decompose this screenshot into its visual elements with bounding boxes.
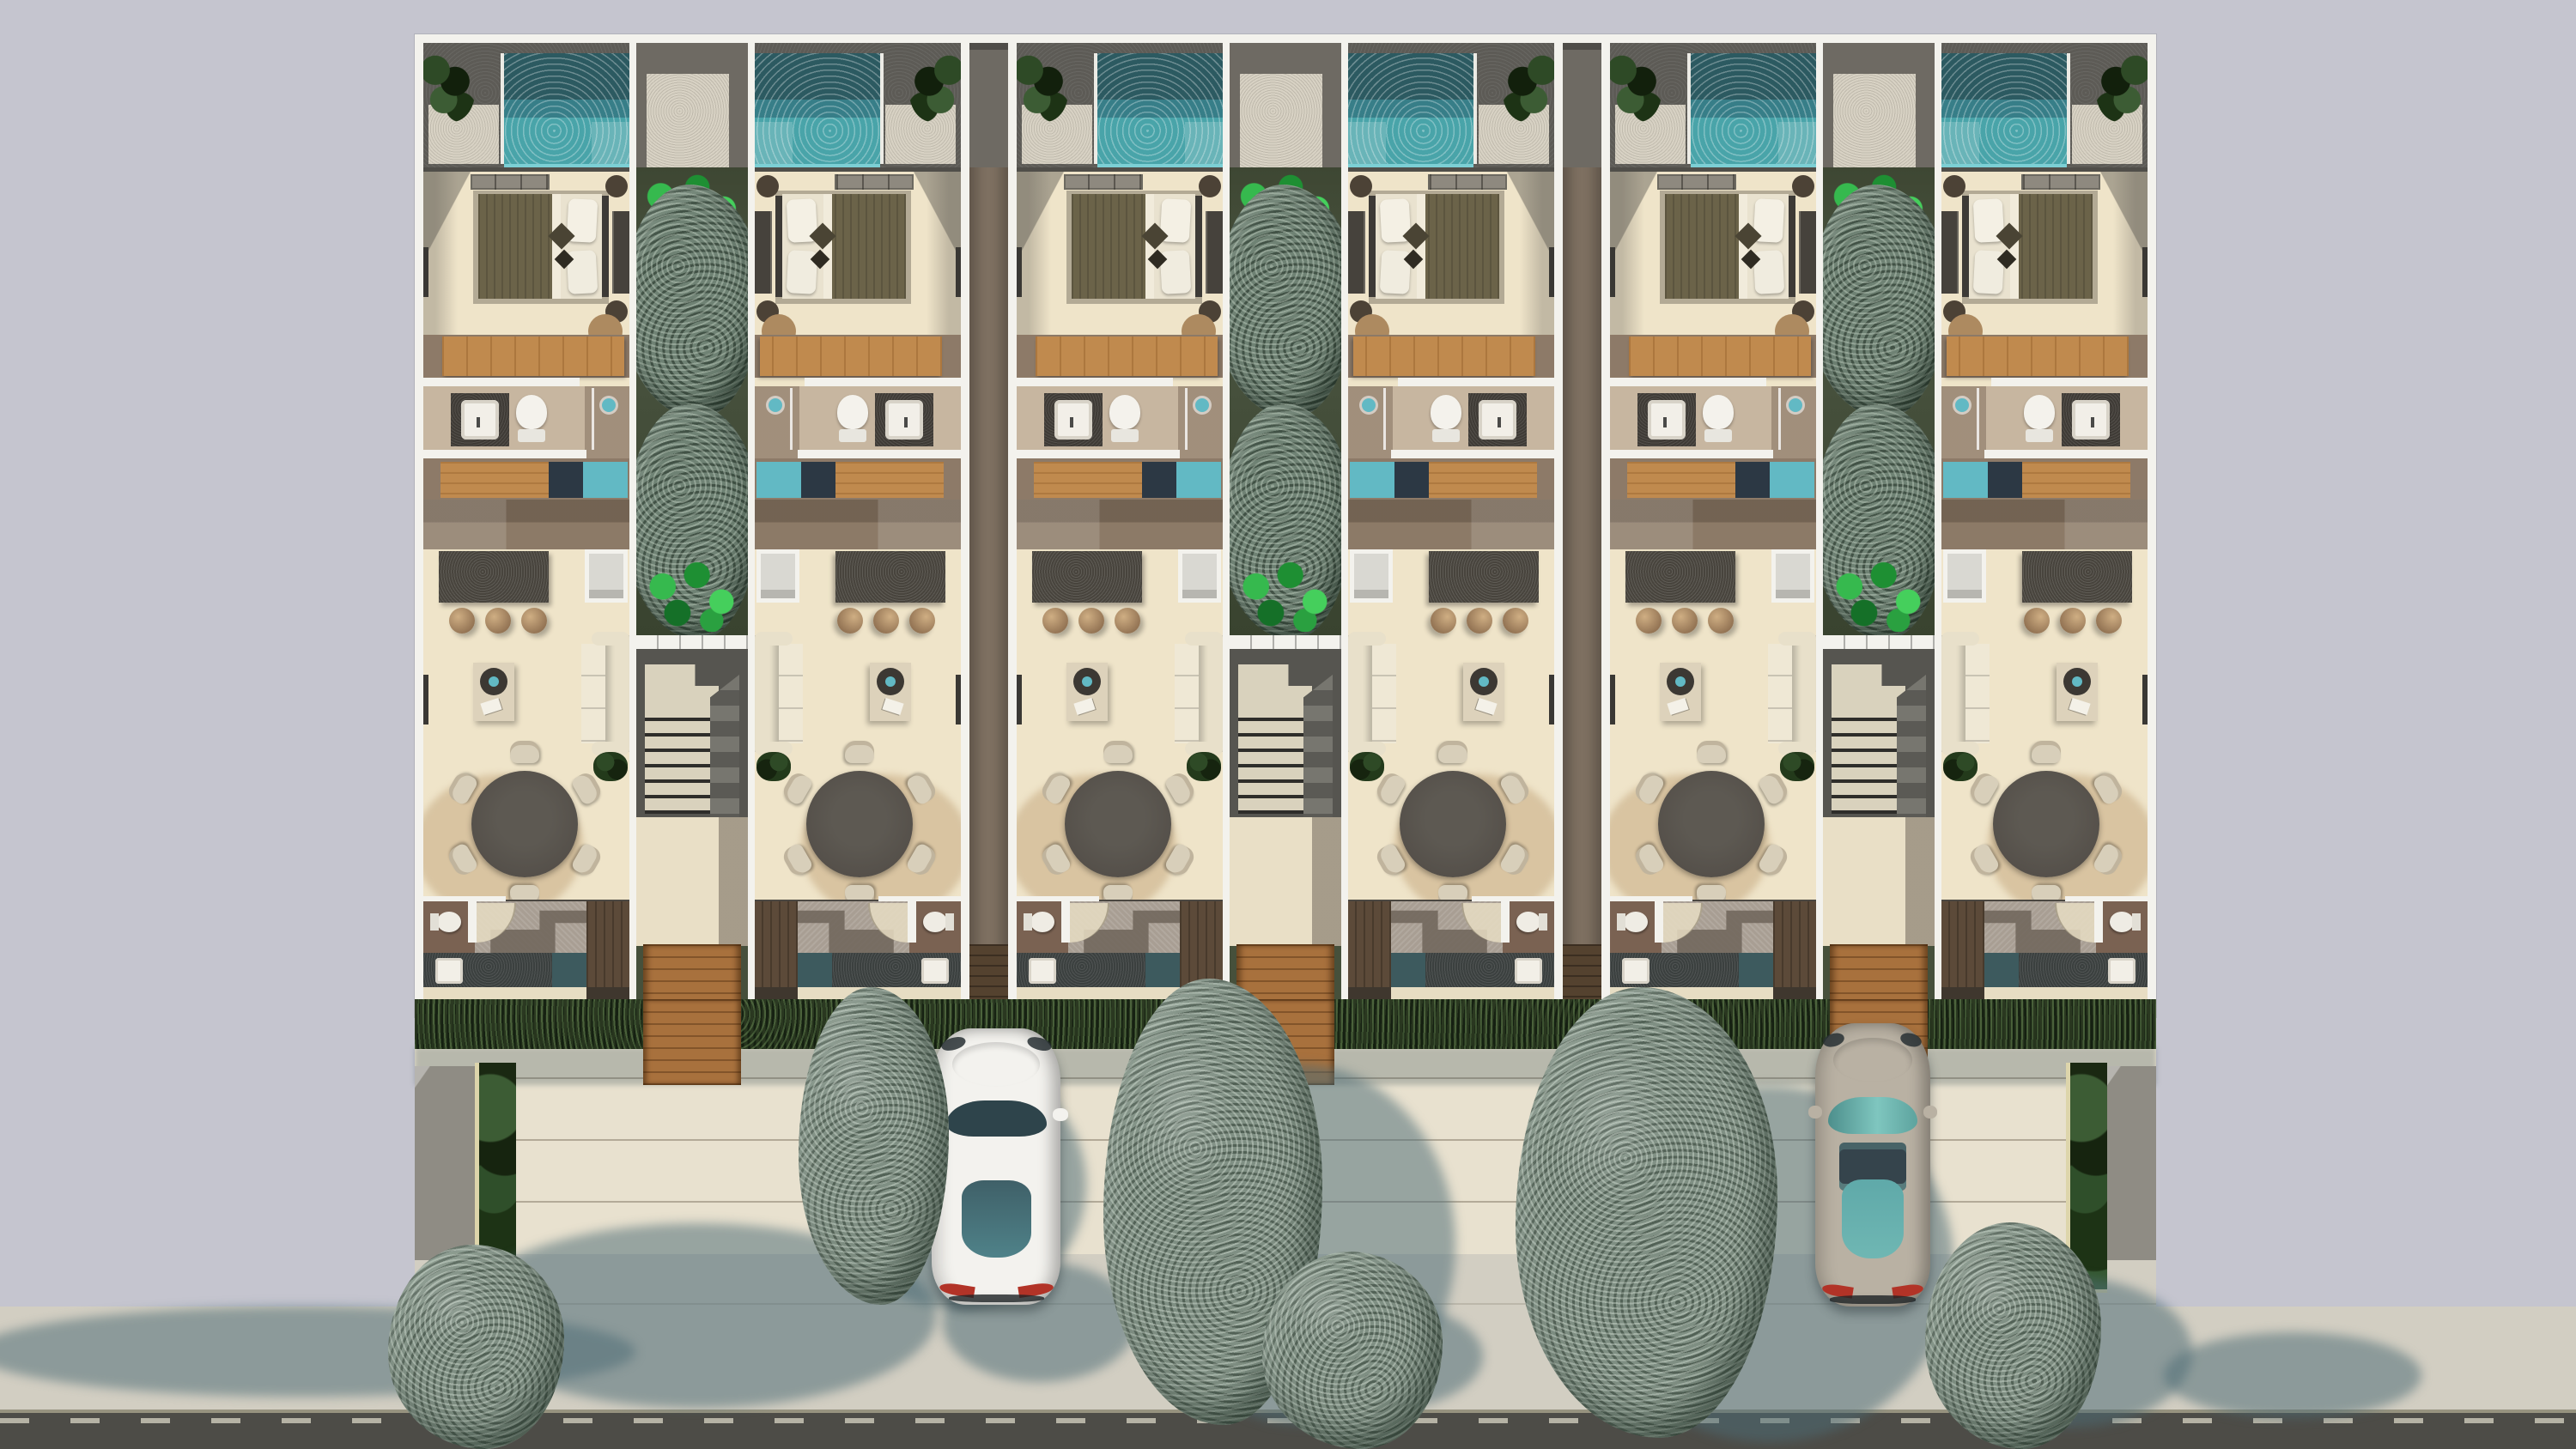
kitchen-appliance [1771, 549, 1814, 603]
faucet [2091, 417, 2094, 427]
car-white [932, 1028, 1060, 1305]
kitchen-appliance [1350, 549, 1393, 603]
teal-plate [489, 676, 499, 687]
windshield [1828, 1097, 1918, 1134]
toilet-tank [2026, 429, 2053, 442]
tv-console-mark [1017, 247, 1022, 297]
nightstand [1350, 175, 1372, 197]
bar-stool [449, 608, 475, 634]
sofa-armrest [1778, 632, 1816, 646]
stair-hall-floor [636, 817, 748, 946]
tree-shadow [2164, 1332, 2421, 1418]
unit-3 [1017, 43, 1223, 1017]
terrace-pad [1833, 74, 1916, 167]
sofa-back [755, 635, 779, 752]
wood-wardrobe-counter [442, 336, 624, 376]
pool-coping [880, 53, 884, 164]
powder-toilet-tank [1617, 913, 1625, 931]
faucet [904, 417, 908, 427]
stair-treads [1832, 706, 1897, 814]
shelf-cabinet [1142, 462, 1176, 498]
bathroom-sink [1054, 400, 1092, 440]
side-mirror [1923, 1106, 1937, 1119]
kitchen-appliance [756, 549, 799, 603]
powder-sink [921, 958, 949, 984]
bathroom-wall [1398, 378, 1554, 386]
bar-stool [909, 608, 935, 634]
closet-floor [423, 500, 629, 549]
wood-shelf [1627, 462, 1735, 498]
site-plan [0, 0, 2576, 1449]
shower-glass [1383, 388, 1386, 450]
terrace-pad [647, 74, 729, 167]
stair-landing-wall [1230, 635, 1341, 649]
floor-plant [1943, 752, 1978, 781]
powder-toilet-tank [945, 913, 954, 931]
bar-stool [2096, 608, 2122, 634]
front-door-zone [755, 901, 798, 987]
pool-highlight [1348, 122, 1386, 164]
toilet-tank [1704, 429, 1732, 442]
bar-stool [1115, 608, 1140, 634]
pool-highlight [755, 122, 793, 164]
wardrobe [1428, 174, 1507, 190]
unit-6 [1941, 43, 2148, 1017]
bathroom-wall [423, 378, 580, 386]
powder-sink [1515, 958, 1542, 984]
stair-flight-lower [1303, 675, 1333, 817]
terrace-plant [1610, 48, 1662, 122]
wood-shelf [835, 462, 944, 498]
powder-toilet [1030, 912, 1054, 932]
terrace-plant [1017, 48, 1068, 122]
tree-3 [1516, 987, 1777, 1438]
sofa-back [605, 635, 629, 752]
garden-tree [1230, 185, 1341, 418]
powder-room-wall [2094, 901, 2103, 943]
passage-deck [969, 50, 1008, 167]
entry-teal-panel [1984, 953, 2019, 987]
bedroom-console [1206, 211, 1223, 294]
terrace-pad [1240, 74, 1322, 167]
bar-stool [1636, 608, 1662, 634]
teal-shower-tray [1943, 462, 1988, 498]
nightstand [1199, 175, 1221, 197]
side-path-1 [969, 43, 1008, 1017]
bedroom-console [1348, 211, 1365, 294]
powder-room-wall [1061, 901, 1070, 943]
headboard [602, 196, 609, 297]
wood-wardrobe-counter [1629, 336, 1811, 376]
sofa-armrest [1941, 632, 1979, 646]
bathroom-wall [1391, 450, 1554, 458]
teal-shower-tray [756, 462, 801, 498]
dining-table [806, 771, 913, 877]
side-mirror [1053, 1108, 1068, 1120]
shower-glass [1185, 388, 1188, 450]
front-door-zone [586, 901, 629, 987]
bar-stool [1078, 608, 1104, 634]
kitchen-island [1625, 551, 1735, 603]
sofa-armrest [1185, 632, 1223, 646]
pool-highlight [1778, 122, 1816, 164]
powder-toilet-tank [430, 913, 439, 931]
dining-table [1065, 771, 1171, 877]
car-champagne [1815, 1023, 1930, 1307]
dining-chair [510, 741, 539, 763]
kitchen-appliance [1943, 549, 1986, 603]
wood-shelf [1429, 462, 1537, 498]
shower-fixture [602, 398, 616, 412]
pool-highlight [1185, 122, 1223, 164]
powder-sink [1622, 958, 1649, 984]
faucet [1663, 417, 1667, 427]
shelf-cabinet [549, 462, 583, 498]
toilet-tank [1111, 429, 1139, 442]
terrace-plant [909, 48, 961, 122]
entry-teal-panel [798, 953, 832, 987]
stair-flight-lower [1897, 675, 1926, 817]
toilet-tank [1432, 429, 1460, 442]
sofa-seat [581, 644, 605, 743]
media-wall-mark [423, 675, 428, 724]
shelf-cabinet [1394, 462, 1429, 498]
unit-2 [755, 43, 961, 1017]
garden-plants [1236, 556, 1334, 632]
shower-fixture [769, 398, 782, 412]
teal-shower-tray [1176, 462, 1221, 498]
floor-plant [1187, 752, 1221, 781]
shelf-cabinet [1988, 462, 2022, 498]
bar-stool [521, 608, 547, 634]
powder-sink [1029, 958, 1056, 984]
roof-fascia [1563, 43, 1601, 50]
stair-treads [645, 706, 710, 814]
side-path-2 [1563, 43, 1601, 1017]
bathroom-wall [1017, 450, 1180, 458]
closet-floor [1941, 500, 2148, 549]
media-wall-mark [1017, 675, 1022, 724]
terrace-plant [423, 48, 475, 122]
bedroom-console [612, 211, 629, 294]
car-hood [952, 1042, 1040, 1087]
bar-stool [1503, 608, 1528, 634]
tree-1 [799, 987, 949, 1305]
pool-coping [501, 53, 504, 164]
powder-toilet-tank [2132, 913, 2141, 931]
rear-bumper [1830, 1295, 1915, 1304]
front-door-zone [1773, 901, 1816, 987]
front-door-zone [1941, 901, 1984, 987]
bar-stool [2060, 608, 2086, 634]
kitchen-appliance [1178, 549, 1221, 603]
terrace-plant [2096, 48, 2148, 122]
shelf-cabinet [801, 462, 835, 498]
powder-toilet [1516, 912, 1540, 932]
roof-fascia [969, 43, 1008, 50]
bed-duvet [2019, 194, 2093, 299]
dining-chair [2032, 741, 2061, 763]
shower-fixture [1362, 398, 1376, 412]
bedroom-console [1799, 211, 1816, 294]
tv-console-mark [2142, 247, 2148, 297]
nightstand [605, 175, 628, 197]
kitchen-appliance [585, 549, 628, 603]
car-hood [1833, 1038, 1911, 1083]
toilet-tank [839, 429, 866, 442]
toilet [1109, 395, 1140, 429]
bed-duvet [1665, 194, 1739, 299]
toilet [2024, 395, 2055, 429]
wardrobe [471, 174, 550, 190]
headboard [1962, 196, 1969, 297]
tv-console-mark [1549, 247, 1554, 297]
faucet [1070, 417, 1073, 427]
planter-pad-right [2105, 1066, 2156, 1260]
stair-treads [1238, 706, 1303, 814]
dining-table [1658, 771, 1765, 877]
powder-room-wall [1655, 901, 1663, 943]
sofa-seat [1175, 644, 1199, 743]
tv-console-mark [423, 247, 428, 297]
wardrobe [1064, 174, 1143, 190]
teal-plate [2072, 676, 2082, 687]
wardrobe [835, 174, 914, 190]
media-wall-mark [1549, 675, 1554, 724]
sofa-armrest [592, 632, 629, 646]
teal-shower-tray [1770, 462, 1814, 498]
tv-console-mark [1610, 247, 1615, 297]
floor-plant [1780, 752, 1814, 781]
headboard [1369, 196, 1376, 297]
front-door-zone [1348, 901, 1391, 987]
bed-duvet [1425, 194, 1499, 299]
sofa-back [1199, 635, 1223, 752]
garden-tree [1823, 185, 1935, 418]
stair-landing-wall [1823, 635, 1935, 649]
media-wall-mark [1610, 675, 1615, 724]
bar-stool [1708, 608, 1734, 634]
shower-fixture [1789, 398, 1802, 412]
faucet [477, 417, 480, 427]
bathroom-wall [1991, 378, 2148, 386]
sofa-seat [1965, 644, 1990, 743]
sofa-seat [1768, 644, 1792, 743]
powder-toilet [1624, 912, 1648, 932]
toilet [516, 395, 547, 429]
bed-duvet [1072, 194, 1145, 299]
entry-teal-panel [1145, 953, 1180, 987]
unit-4 [1348, 43, 1554, 1017]
unit-1 [423, 43, 629, 1017]
teal-plate [1479, 676, 1489, 687]
entry-teal-panel [552, 953, 586, 987]
teal-plate [885, 676, 896, 687]
pool-coping [1687, 53, 1691, 164]
teal-shower-tray [583, 462, 628, 498]
pool-coping [1473, 53, 1477, 164]
rear-window [1842, 1179, 1904, 1258]
powder-toilet-tank [1024, 913, 1032, 931]
shower-fixture [1955, 398, 1969, 412]
bathroom-wall [1984, 450, 2148, 458]
sofa-armrest [755, 632, 793, 646]
garden-strip-3 [1823, 43, 1935, 1017]
wood-shelf [1034, 462, 1142, 498]
kitchen-island [835, 551, 945, 603]
bathroom-wall [1017, 378, 1173, 386]
windshield [946, 1100, 1047, 1137]
dining-chair [1103, 741, 1133, 763]
bar-stool [1672, 608, 1698, 634]
garden-plants [1830, 556, 1928, 632]
garden-strip-1 [636, 43, 748, 1017]
bathroom-sink [1648, 400, 1686, 440]
shower-fixture [1195, 398, 1209, 412]
wardrobe [1657, 174, 1736, 190]
teal-plate [1082, 676, 1092, 687]
toilet [1431, 395, 1461, 429]
bathroom-wall [1610, 450, 1773, 458]
rear-bumper [949, 1294, 1044, 1303]
tree-5 [1262, 1252, 1443, 1449]
powder-toilet [437, 912, 461, 932]
stair-landing-wall [636, 635, 748, 649]
sofa-armrest [1348, 632, 1386, 646]
bathroom-wall [1610, 378, 1766, 386]
bathroom-wall [423, 450, 586, 458]
toilet [1703, 395, 1734, 429]
bar-stool [1431, 608, 1456, 634]
bedroom-console [755, 211, 772, 294]
shower-glass [790, 388, 793, 450]
floor-plant [1350, 752, 1384, 781]
powder-room-wall [1501, 901, 1510, 943]
powder-sink [2108, 958, 2136, 984]
garden-tree [636, 185, 748, 418]
bar-stool [1042, 608, 1068, 634]
faucet [1498, 417, 1501, 427]
toilet-tank [518, 429, 545, 442]
kitchen-island [439, 551, 549, 603]
closet-floor [1017, 500, 1223, 549]
powder-room-wall [908, 901, 916, 943]
headboard [1195, 196, 1202, 297]
shower-glass [1778, 388, 1781, 450]
unit-5 [1610, 43, 1816, 1017]
bar-stool [2024, 608, 2050, 634]
media-wall-mark [2142, 675, 2148, 724]
entry-walkway-1 [643, 999, 741, 1085]
bar-stool [1467, 608, 1492, 634]
wood-shelf [2022, 462, 2130, 498]
headboard [775, 196, 782, 297]
side-mirror [1808, 1106, 1822, 1119]
wood-wardrobe-counter [1353, 336, 1535, 376]
garden-plants [643, 556, 741, 632]
bar-stool [485, 608, 511, 634]
closet-floor [1348, 500, 1554, 549]
garden-strip-2 [1230, 43, 1341, 1017]
tree-4 [388, 1245, 564, 1449]
powder-toilet [923, 912, 947, 932]
teal-shower-tray [1350, 462, 1394, 498]
sofa-back [1792, 635, 1816, 752]
powder-room-wall [468, 901, 477, 943]
media-wall-mark [956, 675, 961, 724]
dining-table [1400, 771, 1506, 877]
entry-teal-panel [1739, 953, 1773, 987]
wood-wardrobe-counter [1036, 336, 1218, 376]
closet-floor [1610, 500, 1816, 549]
shower-glass [592, 388, 594, 450]
tree-6 [1925, 1222, 2101, 1449]
townhouse-building [415, 34, 2156, 1017]
passage-deck [1563, 50, 1601, 167]
stair-hall-floor [1823, 817, 1935, 946]
wood-wardrobe-counter [760, 336, 942, 376]
kitchen-island [1032, 551, 1142, 603]
stair-hall-floor [1230, 817, 1341, 946]
floor-plant [756, 752, 791, 781]
sofa-back [1941, 635, 1965, 752]
pool-coping [2067, 53, 2070, 164]
wardrobe [2021, 174, 2100, 190]
rear-window [962, 1180, 1031, 1258]
nightstand [1792, 175, 1814, 197]
shelf-cabinet [1735, 462, 1770, 498]
powder-toilet [2110, 912, 2134, 932]
planter-pad-left [415, 1066, 477, 1260]
powder-sink [435, 958, 463, 984]
pool-highlight [592, 122, 629, 164]
floor-plant [593, 752, 628, 781]
wood-shelf [440, 462, 549, 498]
bathroom-sink [461, 400, 499, 440]
bathroom-wall [805, 378, 961, 386]
terrace-plant [1503, 48, 1554, 122]
bedroom-console [1941, 211, 1959, 294]
toilet [837, 395, 868, 429]
pool-highlight [1941, 122, 1979, 164]
dining-table [471, 771, 578, 877]
tv-console-mark [956, 247, 961, 297]
wood-wardrobe-counter [1947, 336, 2129, 376]
dining-chair [1697, 741, 1726, 763]
kitchen-island [1429, 551, 1539, 603]
stair-flight-lower [710, 675, 739, 817]
closet-floor [755, 500, 961, 549]
bathroom-wall [798, 450, 961, 458]
entry-teal-panel [1391, 953, 1425, 987]
nightstand [756, 175, 779, 197]
bar-stool [873, 608, 899, 634]
dining-chair [1438, 741, 1467, 763]
headboard [1789, 196, 1795, 297]
shower-glass [1977, 388, 1979, 450]
sofa-seat [779, 644, 803, 743]
teal-plate [1675, 676, 1686, 687]
bar-stool [837, 608, 863, 634]
dining-table [1993, 771, 2099, 877]
bed-duvet [478, 194, 552, 299]
nightstand [1943, 175, 1965, 197]
sofa-back [1348, 635, 1372, 752]
bed-duvet [832, 194, 906, 299]
sofa-seat [1372, 644, 1396, 743]
dining-chair [845, 741, 874, 763]
front-door-zone [1180, 901, 1223, 987]
